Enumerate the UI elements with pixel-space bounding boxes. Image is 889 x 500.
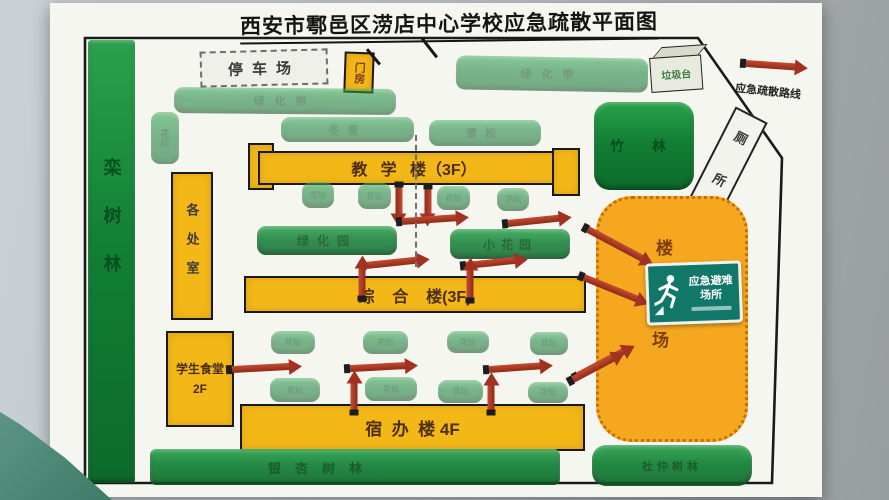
flower-bed: 花坛 [363,331,408,354]
flower-bed: 花坛 [271,331,315,354]
flower-bed: 花坛 [528,382,568,403]
canteen-label-line1: 学生食堂 [176,359,224,379]
evacuation-arrow [467,270,474,298]
evacuation-arrow [488,385,495,410]
flower-bed: 花坛 [358,183,391,209]
running-man-icon [653,272,684,315]
garden-strip: 绿化园 [257,226,397,255]
shelter-sign-text: 应急避难 场所 [687,273,734,311]
evacuation-arrow [396,188,403,215]
teaching-building: 教 学 楼（3F） [248,141,580,197]
hedge-strip: 绿化带 [174,87,396,115]
evacuation-arrow [351,383,358,410]
offices-building: 各处室 [171,172,213,320]
garbage-stand-label: 垃圾台 [649,54,703,93]
garbage-stand: 垃圾台 [648,44,709,96]
gatehouse: 门房 [343,51,374,93]
flower-bed: 花坛 [437,186,470,210]
flower-bed: 花坛 [270,378,320,402]
shelter-sign-subtext [692,306,732,311]
canteen-label-line2: 2F [193,379,207,399]
bamboo-grove: 竹 林 [594,102,694,190]
evacuation-arrow [359,268,366,296]
right-forest-strip: 杜仲树林 [592,445,752,486]
hedge-strip: 绿化带 [456,55,649,92]
flower-bed: 花坛 [497,188,529,211]
hedge-strip: 冬青 [281,117,414,142]
shelter-sign-line1: 应急避难 [687,273,733,289]
left-forest-strip: 栾树林 [88,40,135,483]
parking-lot: 停车场 [200,48,329,87]
assembly-label-bottom: 场 [652,326,669,351]
shelter-sign-line2: 场所 [688,288,734,304]
teaching-building-right-wing [552,148,580,196]
flower-bed: 花坛 [302,182,334,208]
bottom-forest-strip: 银杏树林 [150,449,560,485]
dorm-building: 宿 办 楼 4F [240,404,585,451]
flower-bed: 花坛 [151,112,179,164]
divider-dashed-line [415,135,417,267]
flower-bed: 花坛 [530,332,568,355]
comprehensive-building: 综 合 楼(3F) [244,276,586,313]
emergency-shelter-sign: 应急避难 场所 [645,260,743,325]
evacuation-arrow [425,190,432,215]
flower-bed: 花坛 [438,380,483,403]
canteen-building: 学生食堂 2F [166,331,234,427]
flower-bed: 花坛 [447,331,489,353]
assembly-label-top: 楼 [656,234,673,259]
page-title: 西安市鄠邑区涝店中心学校应急疏散平面图 [240,5,658,44]
garden-strip: 小花园 [450,229,570,259]
teaching-building-label: 教 学 楼（3F） [258,151,570,185]
flower-bed: 花坛 [365,377,417,401]
